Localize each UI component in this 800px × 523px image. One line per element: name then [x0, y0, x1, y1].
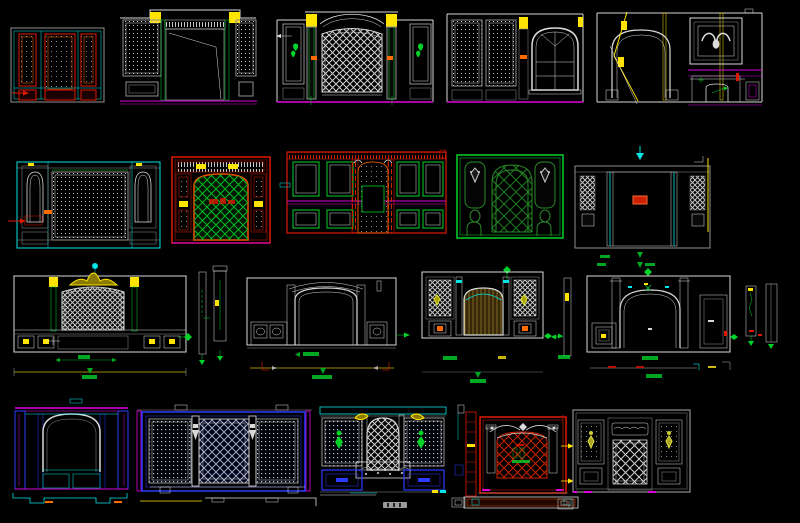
yellow-leaning-pole: [614, 12, 638, 101]
white-swag-crest: [490, 423, 556, 432]
left-dotted-panel: [322, 418, 362, 466]
arch-niche: [43, 414, 100, 472]
dimension-strings: [14, 355, 186, 379]
arch: [620, 290, 680, 348]
drawing-arch-opening-elevation[interactable]: [247, 278, 410, 379]
dotted-field: [52, 172, 128, 240]
heart-ornament: [291, 43, 298, 57]
dimension-string: [250, 352, 394, 379]
drawing-lattice-heart-wall[interactable]: [276, 12, 433, 105]
base-square-panels: [18, 336, 180, 349]
top-hatch-band: [287, 152, 446, 159]
cyan-plinth: [13, 493, 127, 503]
right-lattice-column: [511, 277, 539, 336]
floor-baseline: [140, 498, 316, 506]
lattice-field: [322, 29, 382, 93]
left-niche-pilaster: [22, 163, 48, 228]
headboard-lattice: [62, 287, 124, 330]
right-column: [251, 174, 266, 232]
drawing-arched-wall-elevation[interactable]: [587, 268, 738, 378]
green-diamond-right: [730, 334, 738, 340]
section-profiles-left[interactable]: [199, 266, 227, 365]
section-strip-red[interactable]: [455, 405, 476, 496]
scalloped-crest: [320, 14, 384, 24]
right-dotted-panel: [404, 418, 444, 466]
left-lattice-column: [426, 277, 454, 336]
left-lower-panel: [592, 323, 616, 348]
right-lattice-column: [690, 176, 705, 226]
section-profiles-right[interactable]: [746, 284, 777, 349]
right-tall-panel: [700, 295, 727, 348]
center-lattice-door: [199, 419, 249, 483]
slatted-arch: [464, 288, 503, 335]
gold-scroll: [355, 414, 368, 420]
left-column: [176, 174, 191, 232]
drawing-white-fireplace-wall[interactable]: [320, 407, 465, 508]
cyan-arrow-marker: [636, 146, 644, 160]
drawing-niche-panel-wall[interactable]: [8, 162, 160, 248]
right-ornament-panel: [656, 420, 682, 464]
drawing-headboard-wall[interactable]: [14, 263, 192, 379]
base-lines: [120, 101, 257, 104]
left-cabinet: [251, 322, 287, 345]
right-ornament-column: [535, 162, 555, 236]
dotted-panels: [19, 34, 96, 92]
door-opening: [166, 29, 224, 100]
arch-opening: [295, 288, 357, 345]
stile-with-handle: [192, 416, 199, 486]
dimension-marks: [597, 252, 655, 268]
left-ornament-column: [465, 162, 485, 236]
scalloped-band: [289, 283, 363, 293]
drawing-green-arch-lattice-wall[interactable]: [457, 155, 563, 238]
white-arrow-marker: [276, 34, 292, 38]
top-hatch-band: [178, 162, 264, 172]
drawing-slatted-arch-wall[interactable]: [422, 266, 563, 383]
left-dotted-door: [149, 419, 191, 483]
blue-lower-cabinets: [322, 470, 444, 490]
red-lattice-field: [497, 432, 547, 478]
base-lines: [277, 96, 433, 105]
left-ornament-panel: [578, 420, 604, 464]
center-opening: [607, 172, 677, 246]
left-lattice-column: [580, 176, 595, 226]
right-panel: [367, 281, 387, 345]
dimension-bar: [590, 356, 730, 378]
drawing-teal-panel-tv-wall[interactable]: [280, 150, 446, 233]
drawing-red-lattice-media-wall[interactable]: [172, 157, 270, 243]
cyan-top-tick: [70, 399, 82, 403]
stile-with-handle: [249, 416, 256, 486]
drawing-red-panel-wall[interactable]: [11, 28, 104, 102]
heart-ornament: [416, 43, 423, 57]
drawing-gray-panel-wall[interactable]: [558, 410, 690, 509]
drawing-arch-skull-fireplace[interactable]: [597, 9, 762, 105]
legend-box-icon: [452, 498, 465, 507]
green-arrow-right: [396, 333, 410, 338]
right-side-panel: [745, 9, 759, 100]
center-lattice-panel: [608, 418, 652, 490]
cyan-cornice: [320, 407, 446, 414]
bull-skull-picture: [690, 18, 742, 64]
right-dotted-door: [256, 419, 298, 483]
drawing-gray-tv-wall[interactable]: [575, 146, 710, 268]
cad-canvas[interactable]: [0, 0, 800, 523]
dimension-marks: [422, 356, 543, 383]
door-swing-lines: [169, 33, 221, 99]
arched-window: [529, 28, 581, 94]
base-panels: [19, 90, 96, 100]
tv-red-block: [633, 196, 647, 204]
tv-opening: [362, 186, 384, 212]
right-niche-pilaster: [130, 163, 156, 228]
center-arched-niche: [352, 160, 394, 233]
dotted-panels: [452, 20, 516, 86]
crown-ornament: [70, 273, 117, 285]
drawing-blue-lattice-cabinet[interactable]: [137, 405, 316, 506]
arch-opening: [606, 30, 678, 100]
green-marker-top: [644, 268, 652, 276]
model-space: [0, 0, 800, 523]
drawing-red-lattice-fireplace[interactable]: [464, 417, 578, 508]
drawing-arch-cabinet[interactable]: [13, 399, 128, 503]
section-profile-mid[interactable]: [551, 278, 571, 359]
drawing-window-wall[interactable]: [447, 14, 583, 102]
carved-lintel: [165, 20, 225, 29]
green-marker-top: [503, 266, 511, 282]
drawing-doorway-elevation[interactable]: [120, 10, 257, 104]
tiny-caption-blur: [383, 502, 407, 508]
